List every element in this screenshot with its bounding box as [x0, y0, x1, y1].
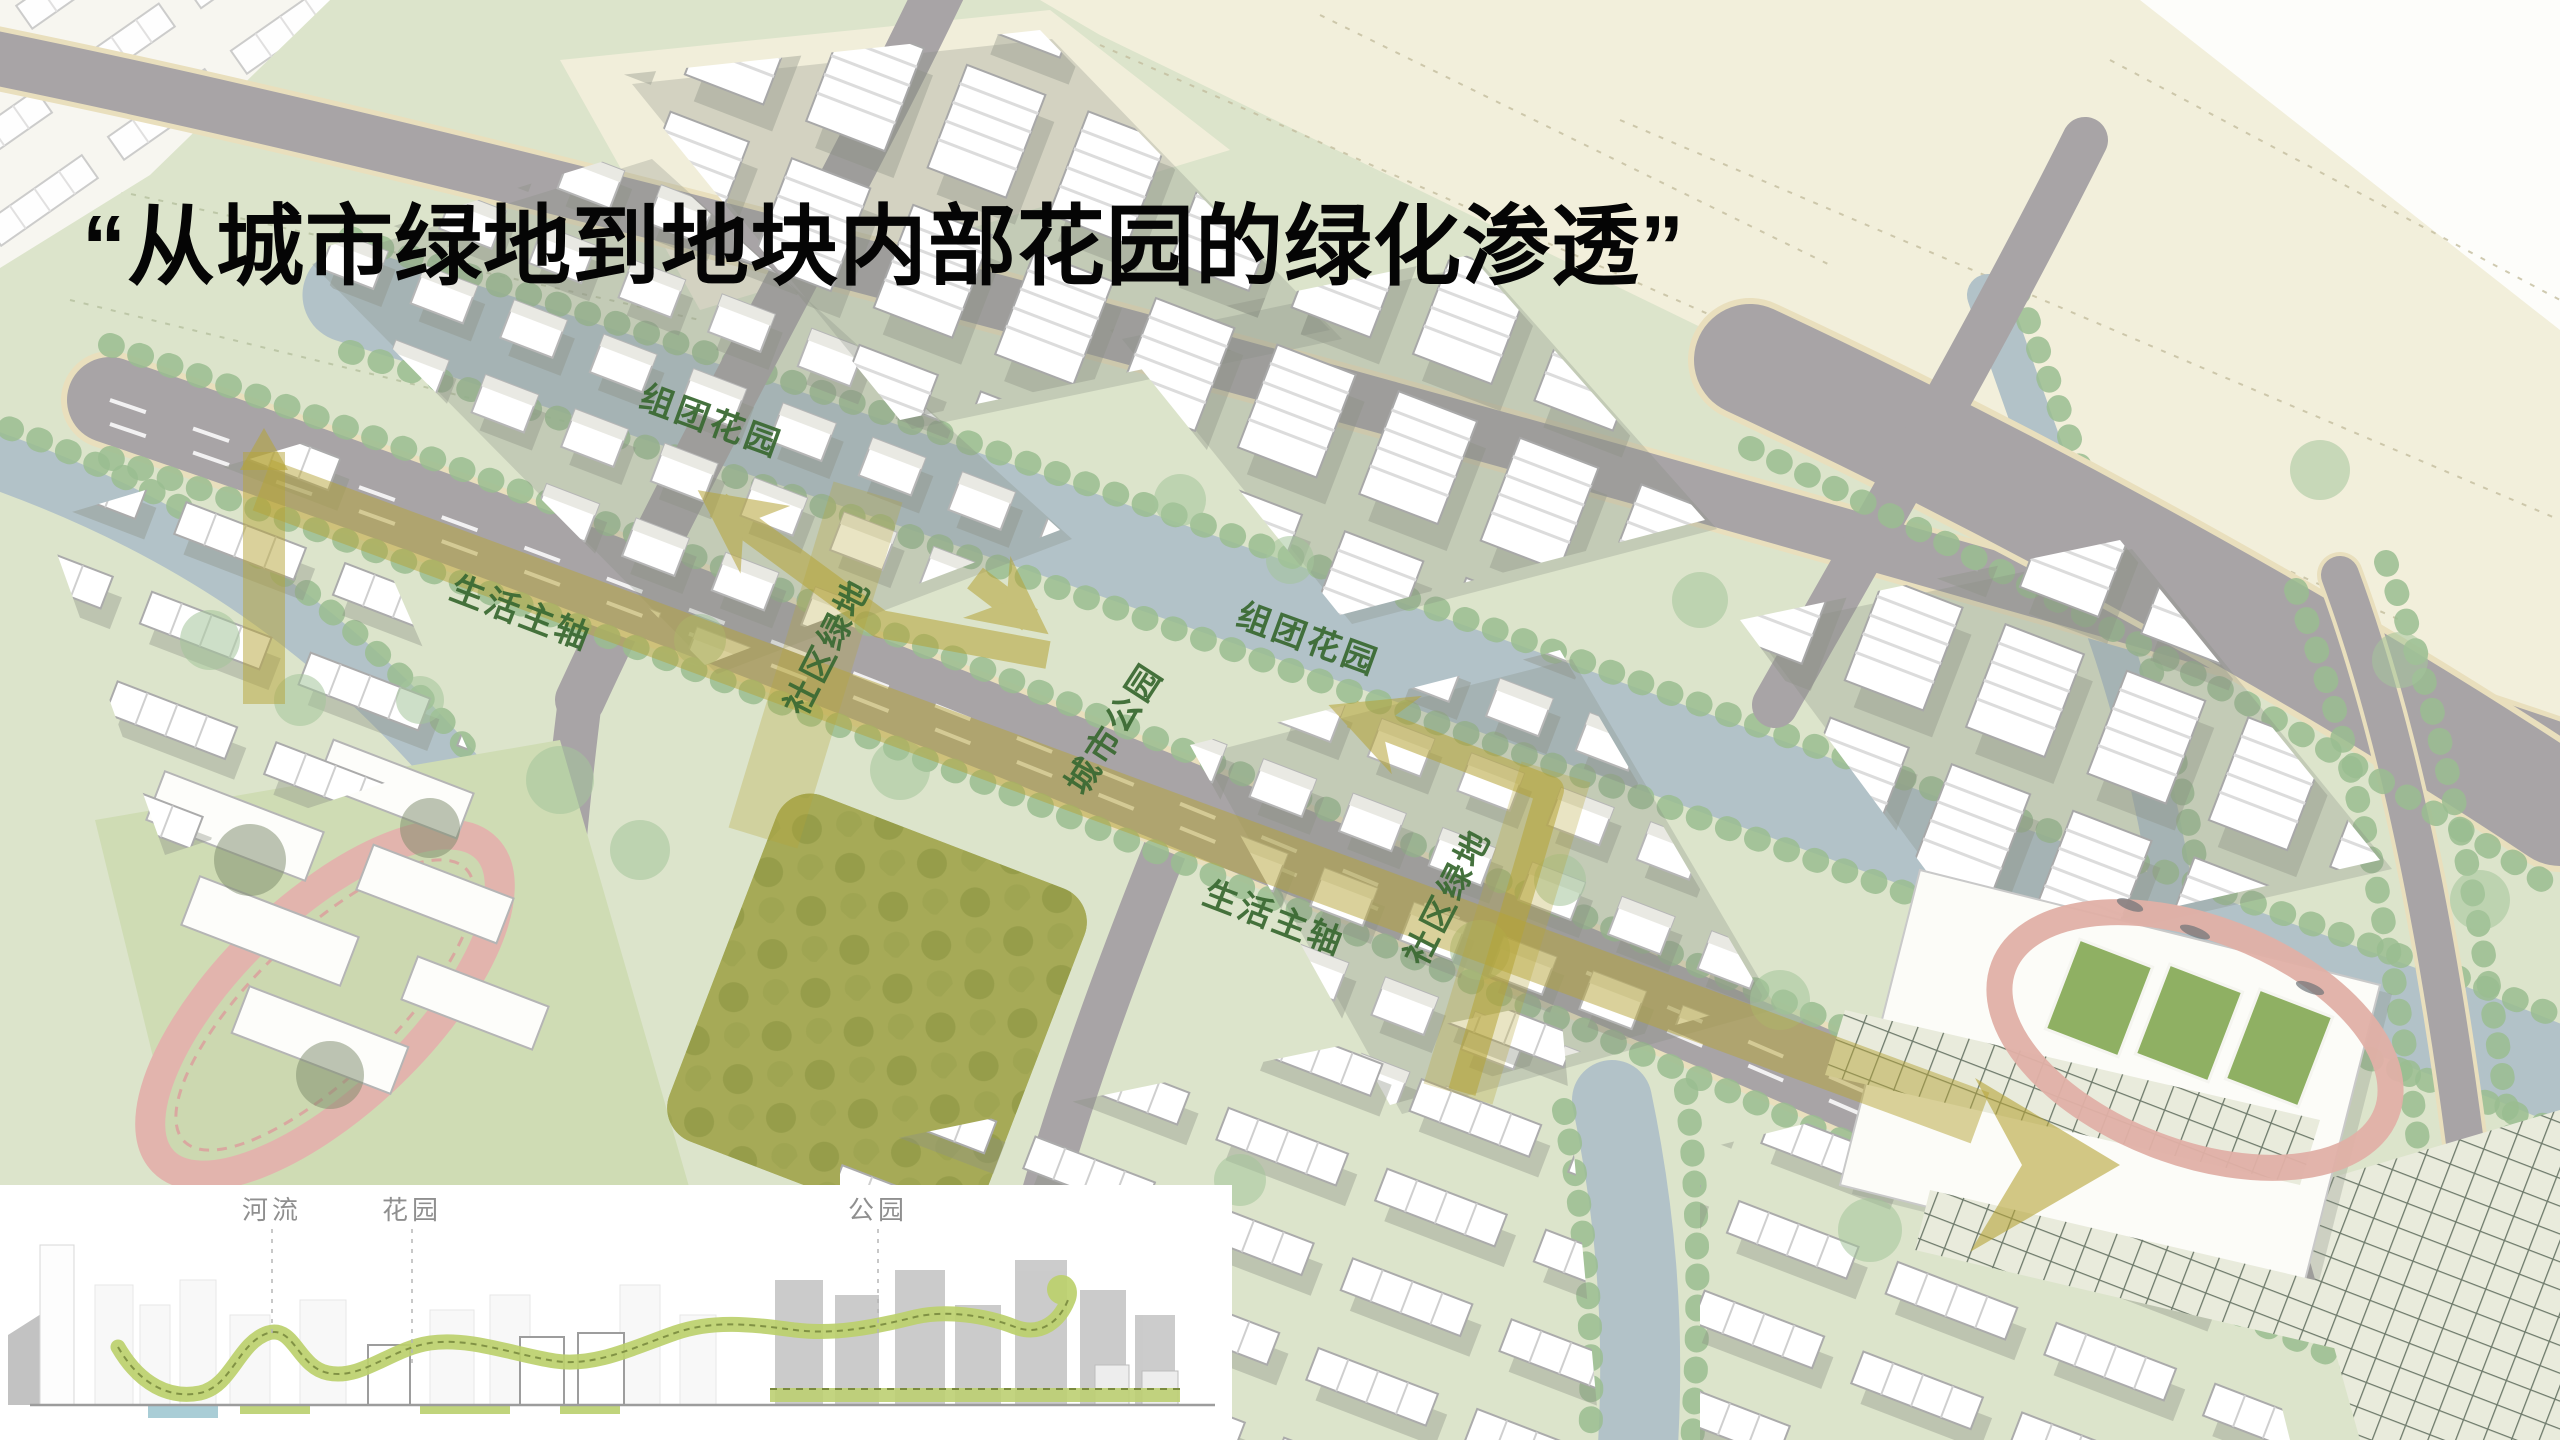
section-water	[148, 1406, 218, 1418]
slide-title: “从城市绿地到地块内部花园的绿化渗透”	[82, 176, 1685, 303]
section-label-park: 公园	[848, 1195, 908, 1225]
slide: 组团花园 生活主轴 社区绿地 城市公园 组团花园 生活主轴 社区绿地 “从城市绿…	[0, 0, 2560, 1440]
section-label-garden: 花园	[382, 1195, 442, 1225]
section-inset: 河流 花园 公园	[0, 1185, 1232, 1440]
axis-start-bar	[243, 452, 285, 704]
section-diagram: 河流 花园 公园	[0, 1185, 1232, 1440]
section-label-river: 河流	[242, 1195, 302, 1225]
south-canal	[1612, 1100, 1640, 1440]
